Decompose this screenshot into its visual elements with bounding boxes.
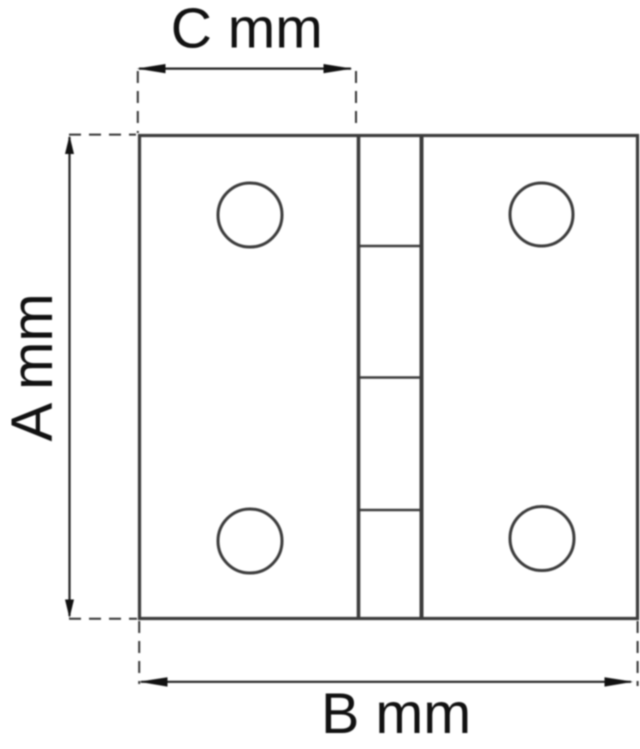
svg-text:B mm: B mm: [321, 682, 471, 746]
svg-text:C mm: C mm: [171, 0, 323, 61]
svg-text:A mm: A mm: [0, 293, 65, 441]
